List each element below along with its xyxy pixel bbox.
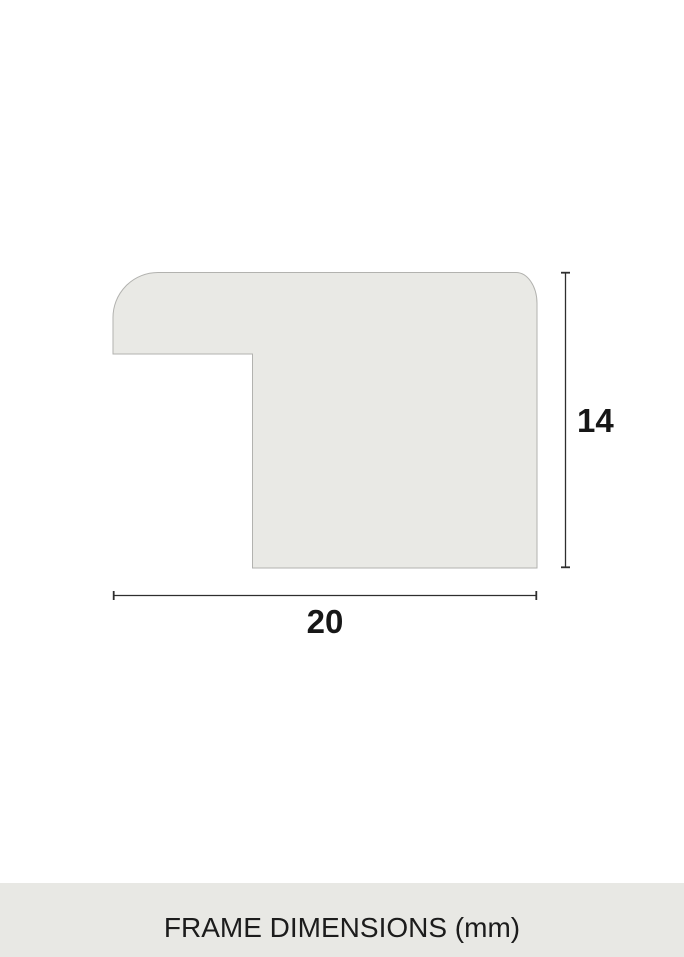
svg-text:14: 14 (577, 402, 614, 439)
svg-text:20: 20 (307, 603, 344, 640)
